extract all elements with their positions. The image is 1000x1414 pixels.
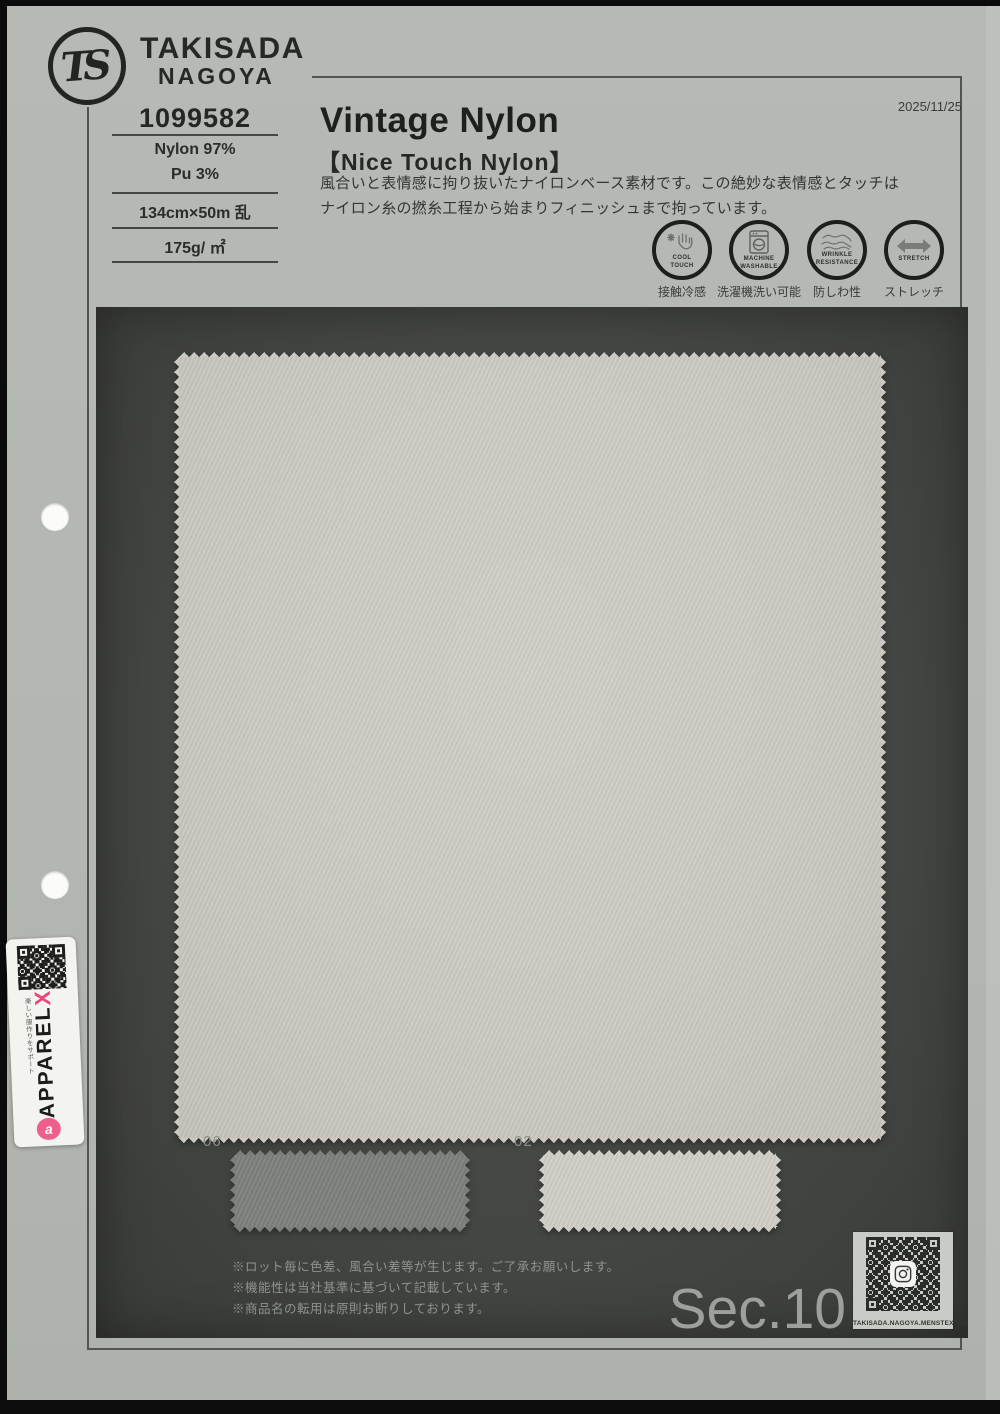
feature-en-label: WASHABLE: [740, 264, 778, 270]
fabric-size: 134cm×50m 乱: [112, 199, 278, 223]
instagram-icon: [890, 1261, 916, 1287]
composition-2: Pu 3%: [112, 166, 278, 184]
feature-label-stretch: ストレッチ: [844, 283, 984, 300]
product-description-line2: ナイロン糸の撚糸工程から始まりフィニッシュまで拘っています。: [320, 197, 776, 218]
qr-caption: TAKISADA.NAGOYA.MENSTEXTILE: [853, 1320, 953, 1327]
scan-edge-bottom: [0, 1400, 1000, 1414]
issue-date: 2025/11/25: [842, 99, 962, 114]
apparelx-brand-text: APPAREL: [31, 1005, 59, 1119]
apparelx-x-mark: X: [30, 988, 56, 1006]
feature-cool-touch: COOL TOUCH: [652, 220, 712, 280]
feature-en-label: MACHINE: [744, 256, 775, 262]
note-line2: ※機能性は当社基準に基づいて記載しています。: [232, 1277, 516, 1296]
feature-en-label: TOUCH: [670, 263, 693, 269]
product-number: 1099582: [112, 103, 278, 134]
header-rule-tick: [960, 76, 962, 96]
header-rule: [312, 76, 962, 78]
feature-wrinkle-resistance: WRINKLE RESISTANCE: [807, 220, 867, 280]
apparelx-qr-code: [17, 944, 67, 990]
feature-en-label: WRINKLE: [822, 252, 853, 258]
feature-machine-washable: MACHINE WASHABLE: [729, 220, 789, 280]
qr-code: [866, 1237, 940, 1311]
wrinkle-resistance-icon: [820, 233, 854, 251]
stretch-icon: [896, 237, 932, 255]
section-label: Sec.10: [600, 1276, 846, 1342]
spec-divider: [112, 227, 278, 229]
brand-name-line2: NAGOYA: [158, 63, 275, 90]
instagram-qr-box: TAKISADA.NAGOYA.MENSTEXTILE: [853, 1232, 953, 1329]
feature-en-label: COOL: [673, 255, 692, 261]
bottom-frame-line: [87, 1348, 962, 1350]
paper-edge-highlight: [986, 6, 1000, 1402]
fabric-weight: 175g/ ㎡: [112, 234, 278, 258]
apparelx-sticker: 楽しい服作りをサポート APPARELX a: [5, 937, 84, 1148]
logo-monogram: TS: [59, 41, 105, 91]
apparelx-logo-icon: a: [36, 1118, 61, 1141]
spec-divider: [112, 261, 278, 263]
product-description-line1: 風合いと表情感に拘り抜いたナイロンベース素材です。この絶妙な表情感とタッチは: [320, 172, 899, 193]
fabric-swatch-main: [174, 352, 886, 1143]
feature-en-label: STRETCH: [898, 256, 929, 262]
takisada-ts-logo-icon: TS: [48, 27, 126, 105]
composition-1: Nylon 97%: [112, 141, 278, 159]
fabric-swatch-color-02: [539, 1150, 781, 1232]
brand-name-line1: TAKISADA: [140, 32, 305, 66]
machine-washable-icon: [746, 229, 772, 255]
feature-en-label: RESISTANCE: [816, 260, 858, 266]
cool-touch-icon: [667, 230, 697, 254]
spec-divider: [112, 134, 278, 136]
punch-hole-top: [41, 503, 69, 531]
color-code-06: 06: [203, 1133, 222, 1150]
feature-stretch: STRETCH: [884, 220, 944, 280]
note-line1: ※ロット毎に色差、風合い差等が生じます。ご了承お願いします。: [232, 1256, 620, 1275]
product-title: Vintage Nylon: [320, 101, 559, 141]
fabric-swatch-color-06: [230, 1150, 470, 1232]
spec-divider: [112, 192, 278, 194]
punch-hole-bottom: [41, 871, 69, 899]
left-frame-line: [87, 107, 89, 1349]
note-line3: ※商品名の転用は原則お断りしております。: [232, 1298, 490, 1317]
color-code-02: 02: [514, 1133, 533, 1150]
